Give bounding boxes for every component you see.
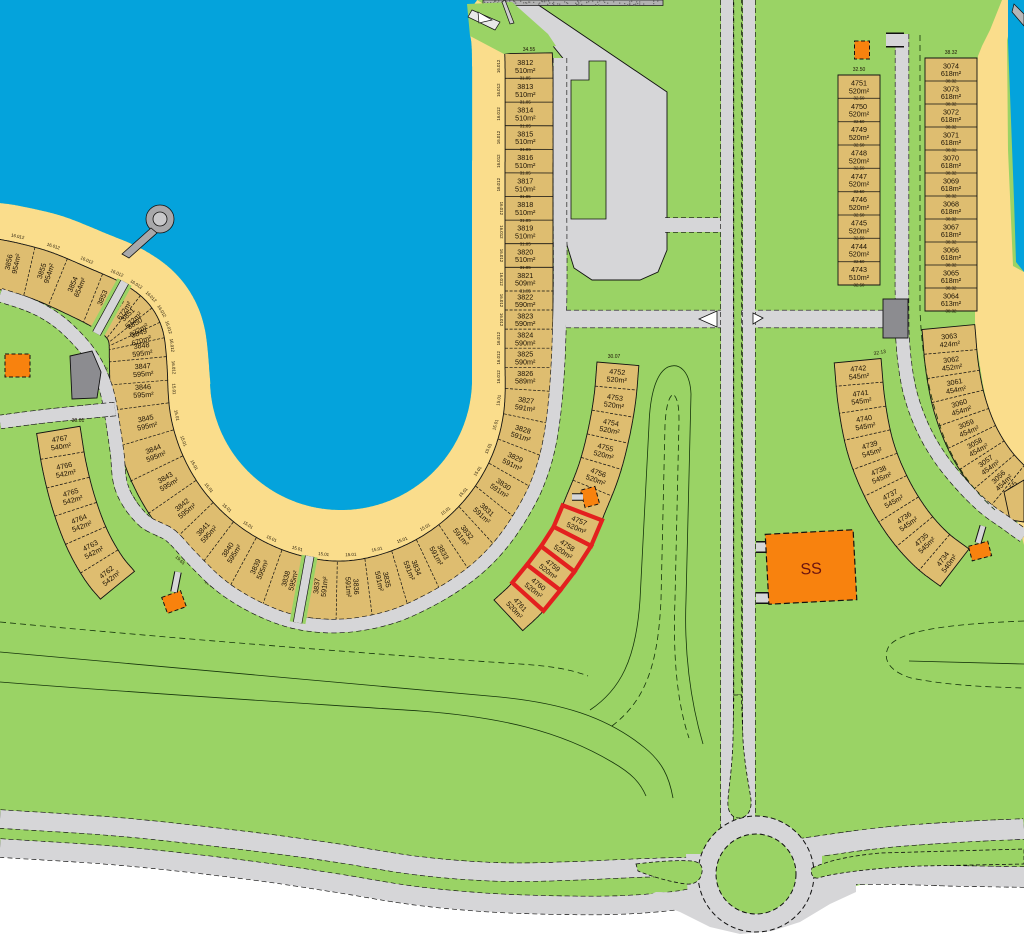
svg-text:618m²: 618m²: [941, 253, 962, 262]
svg-text:595m²: 595m²: [133, 369, 155, 379]
svg-text:31.85: 31.85: [520, 147, 532, 152]
svg-text:16.012: 16.012: [496, 83, 501, 97]
svg-text:590m²: 590m²: [515, 357, 536, 366]
svg-text:510m²: 510m²: [515, 184, 536, 193]
svg-text:618m²: 618m²: [941, 69, 962, 78]
svg-text:510m²: 510m²: [515, 90, 536, 99]
svg-text:510m²: 510m²: [515, 208, 536, 217]
svg-text:509m²: 509m²: [515, 279, 536, 288]
svg-text:510m²: 510m²: [849, 273, 870, 282]
svg-text:520m²: 520m²: [606, 374, 628, 384]
svg-text:16.012: 16.012: [171, 361, 177, 375]
svg-text:16.012: 16.012: [499, 249, 504, 263]
svg-text:424m²: 424m²: [939, 339, 961, 350]
svg-text:16.012: 16.012: [496, 351, 501, 365]
svg-text:16.012: 16.012: [499, 202, 504, 216]
svg-text:590m²: 590m²: [515, 319, 536, 328]
svg-text:16.012: 16.012: [496, 154, 501, 168]
svg-text:31.85: 31.85: [520, 218, 532, 223]
svg-text:30.01: 30.01: [72, 418, 85, 424]
svg-text:16.012: 16.012: [496, 130, 501, 144]
svg-text:590m²: 590m²: [515, 338, 536, 347]
svg-text:38.32: 38.32: [945, 50, 958, 56]
svg-text:618m²: 618m²: [941, 207, 962, 216]
svg-text:16.012: 16.012: [496, 177, 501, 191]
svg-text:618m²: 618m²: [941, 115, 962, 124]
svg-text:31.85: 31.85: [520, 241, 532, 246]
svg-text:31.85: 31.85: [520, 194, 532, 199]
svg-text:32.50: 32.50: [853, 67, 866, 73]
svg-text:510m²: 510m²: [515, 161, 536, 170]
svg-text:595m²: 595m²: [133, 390, 154, 400]
svg-text:16.012: 16.012: [496, 370, 501, 384]
svg-text:30.07: 30.07: [608, 354, 621, 360]
svg-text:15.01: 15.01: [171, 383, 177, 395]
svg-text:520m²: 520m²: [849, 250, 870, 259]
svg-text:520m²: 520m²: [849, 180, 870, 189]
svg-text:590m²: 590m²: [515, 300, 536, 309]
svg-text:16.012: 16.012: [496, 59, 501, 73]
svg-text:510m²: 510m²: [515, 66, 536, 75]
svg-text:589m²: 589m²: [515, 377, 536, 386]
svg-text:545m²: 545m²: [848, 371, 870, 382]
svg-text:618m²: 618m²: [941, 184, 962, 193]
svg-text:31.85: 31.85: [520, 76, 532, 81]
svg-text:520m²: 520m²: [849, 203, 870, 212]
svg-text:618m²: 618m²: [941, 161, 962, 170]
svg-text:618m²: 618m²: [941, 92, 962, 101]
svg-text:510m²: 510m²: [515, 232, 536, 241]
svg-text:510m²: 510m²: [515, 114, 536, 123]
svg-text:31.85: 31.85: [520, 171, 532, 176]
svg-text:38.32: 38.32: [946, 309, 958, 314]
svg-text:613m²: 613m²: [941, 299, 962, 308]
svg-text:510m²: 510m²: [515, 255, 536, 264]
svg-text:510m²: 510m²: [515, 137, 536, 146]
svg-text:16.012: 16.012: [499, 294, 504, 308]
svg-text:618m²: 618m²: [941, 138, 962, 147]
svg-text:16.012: 16.012: [496, 107, 501, 121]
svg-text:32.50: 32.50: [854, 282, 866, 287]
svg-text:520m²: 520m²: [849, 156, 870, 165]
svg-text:16.012: 16.012: [496, 331, 501, 345]
svg-text:15.01: 15.01: [345, 552, 357, 558]
svg-text:520m²: 520m²: [849, 226, 870, 235]
svg-text:520m²: 520m²: [849, 133, 870, 142]
svg-text:520m²: 520m²: [849, 86, 870, 95]
svg-text:31.85: 31.85: [520, 100, 532, 105]
svg-text:618m²: 618m²: [941, 230, 962, 239]
svg-text:618m²: 618m²: [941, 276, 962, 285]
svg-text:34.55: 34.55: [523, 47, 536, 53]
svg-text:16.012: 16.012: [499, 272, 504, 286]
svg-text:31.85: 31.85: [520, 265, 532, 270]
svg-text:16.012: 16.012: [499, 313, 504, 327]
svg-text:16.012: 16.012: [499, 225, 504, 239]
svg-text:591m²: 591m²: [343, 577, 353, 598]
svg-text:520m²: 520m²: [849, 110, 870, 119]
svg-text:31.85: 31.85: [520, 123, 532, 128]
svg-text:SS: SS: [800, 560, 822, 578]
